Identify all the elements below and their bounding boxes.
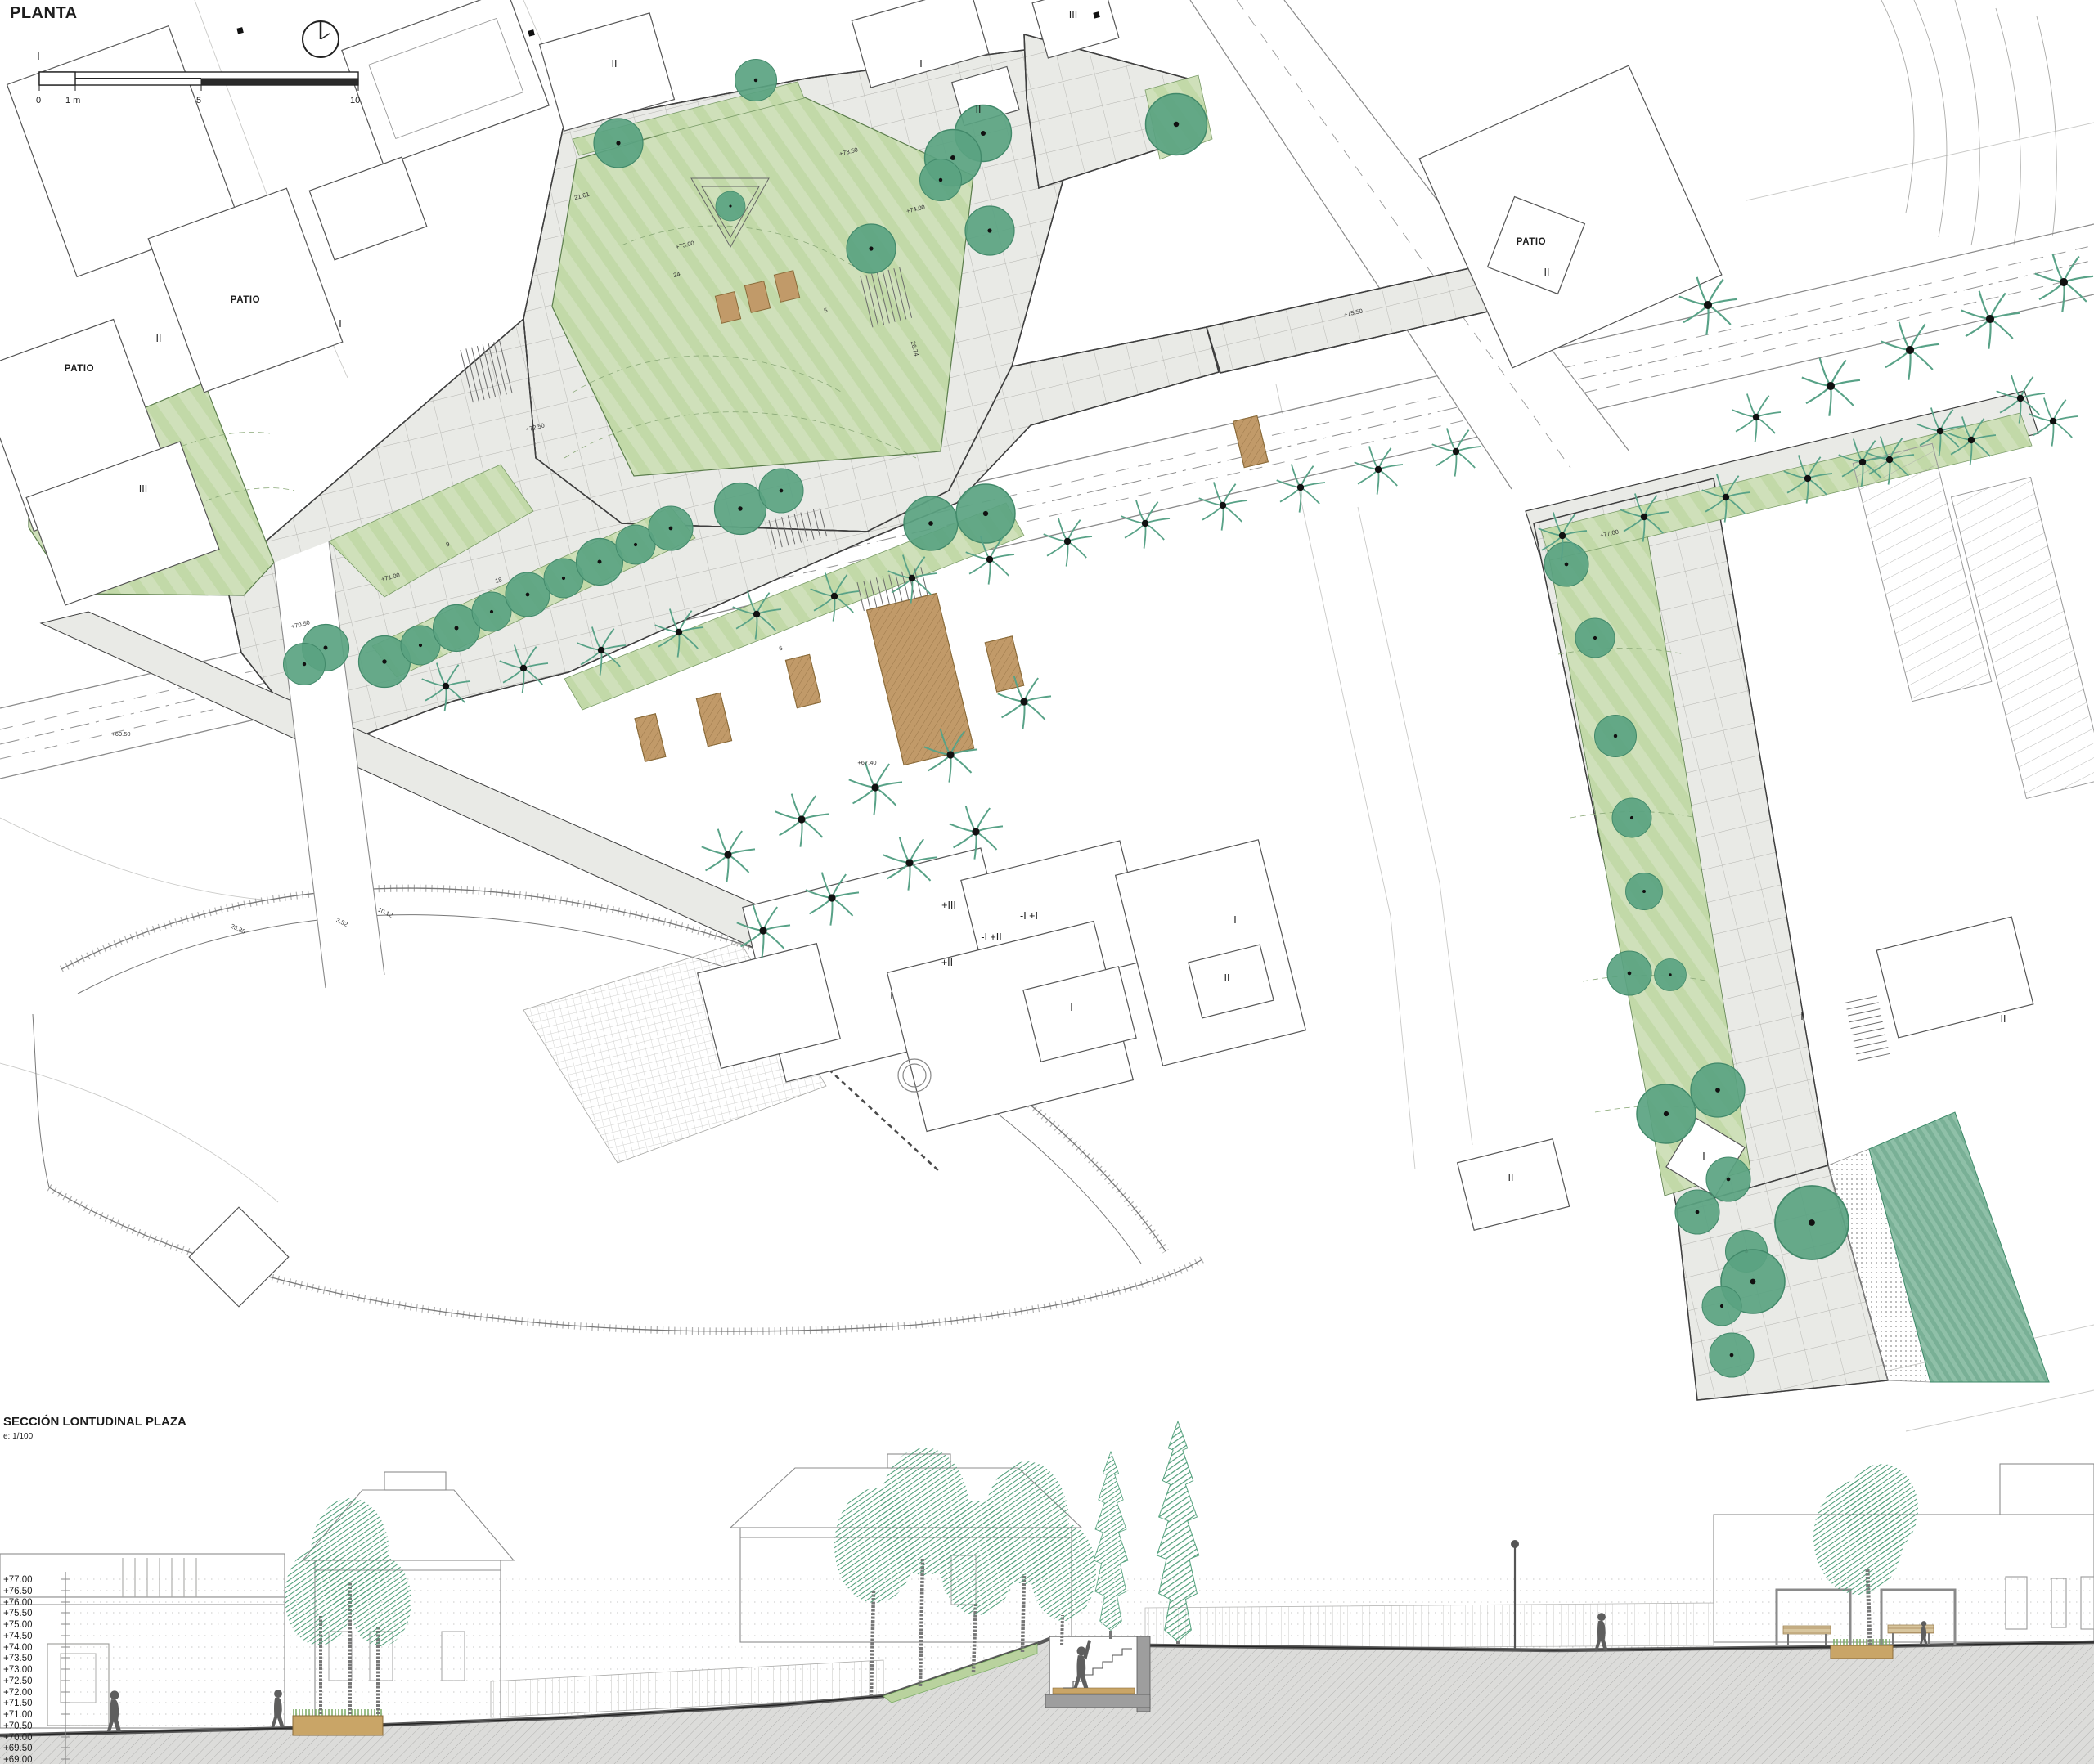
plan-title: PLANTA bbox=[10, 4, 78, 22]
storey-mark: I bbox=[37, 51, 39, 62]
storey-mark: I bbox=[919, 58, 922, 70]
plan-view: I IV PATIO PATIO II III I II I II III PA… bbox=[0, 0, 2094, 1431]
architectural-drawing-sheet: I IV PATIO PATIO II III I II I II III PA… bbox=[0, 0, 2094, 1764]
storey-mark: +II bbox=[941, 957, 953, 968]
storey-mark: III bbox=[1069, 9, 1077, 20]
storey-mark: II bbox=[1224, 972, 1230, 984]
storey-mark: +III bbox=[941, 900, 956, 911]
storey-mark: II bbox=[1544, 267, 1550, 278]
level-label: +76.00 bbox=[3, 1598, 33, 1608]
section-scale-note: e: 1/100 bbox=[3, 1432, 34, 1441]
building-footprint bbox=[189, 1207, 289, 1307]
level-label: +69.50 bbox=[3, 1744, 33, 1753]
storey-mark: II bbox=[976, 104, 982, 115]
level-label: +76.50 bbox=[3, 1587, 33, 1596]
storey-mark: I bbox=[1233, 914, 1236, 926]
scale-tick-1m: 1 m bbox=[65, 96, 80, 105]
section-view: SECCIÓN LONTUDINAL PLAZA e: 1/100 bbox=[0, 1414, 2094, 1764]
storey-mark: II bbox=[1508, 1172, 1514, 1183]
level-label: +72.00 bbox=[3, 1688, 33, 1698]
level-label: +70.50 bbox=[3, 1721, 33, 1731]
dimension: 6 bbox=[778, 644, 783, 653]
level-label: +74.50 bbox=[3, 1632, 33, 1641]
storey-mark: II bbox=[2001, 1013, 2006, 1025]
dimension: 23.88 bbox=[230, 922, 247, 936]
storey-mark: III bbox=[139, 483, 147, 495]
contour-lines bbox=[1881, 0, 2056, 262]
patio-label: PATIO bbox=[231, 295, 260, 305]
site-plan-and-section-drawing: I IV PATIO PATIO II III I II I II III PA… bbox=[0, 0, 2094, 1764]
patio-label: PATIO bbox=[1517, 237, 1546, 247]
cypress-icon bbox=[1094, 1452, 1128, 1631]
storey-mark: I bbox=[1070, 1002, 1072, 1013]
level-label: +70.00 bbox=[3, 1733, 33, 1743]
storey-mark: -I +II bbox=[981, 931, 1001, 943]
storey-mark: II bbox=[156, 333, 162, 344]
storey-mark: I bbox=[1702, 1151, 1705, 1162]
level-label: +71.50 bbox=[3, 1699, 33, 1708]
level-label: +75.50 bbox=[3, 1609, 33, 1618]
north-arrow-icon bbox=[303, 21, 339, 57]
storey-mark: I bbox=[1800, 1011, 1803, 1022]
parking-rows bbox=[1853, 443, 2094, 798]
scale-tick-0: 0 bbox=[36, 96, 41, 105]
section-title: SECCIÓN LONTUDINAL PLAZA bbox=[3, 1414, 186, 1429]
sunken-room bbox=[1045, 1636, 1150, 1712]
tree-crown bbox=[1845, 1464, 1918, 1554]
level-label: +73.00 bbox=[3, 1665, 33, 1675]
level-label: +72.50 bbox=[3, 1676, 33, 1686]
dimension: 10.12 bbox=[377, 906, 394, 919]
level-label: +71.00 bbox=[3, 1710, 33, 1720]
level-label: +75.00 bbox=[3, 1620, 33, 1630]
storey-mark: -I +I bbox=[1020, 910, 1038, 922]
level-label: +69.00 bbox=[3, 1755, 33, 1764]
level-label: +77.00 bbox=[3, 1575, 33, 1585]
spot-elevation: +67.40 bbox=[857, 759, 876, 766]
scale-tick-5: 5 bbox=[196, 96, 201, 105]
patio-label: PATIO bbox=[65, 364, 94, 374]
level-label: +74.00 bbox=[3, 1643, 33, 1653]
storey-mark: II bbox=[612, 58, 618, 70]
storey-mark: I bbox=[339, 318, 341, 330]
spot-elevation: +69.50 bbox=[111, 730, 130, 738]
level-label: +73.50 bbox=[3, 1654, 33, 1663]
storey-mark: I bbox=[890, 990, 892, 1002]
scale-tick-10: 10 bbox=[350, 96, 360, 105]
